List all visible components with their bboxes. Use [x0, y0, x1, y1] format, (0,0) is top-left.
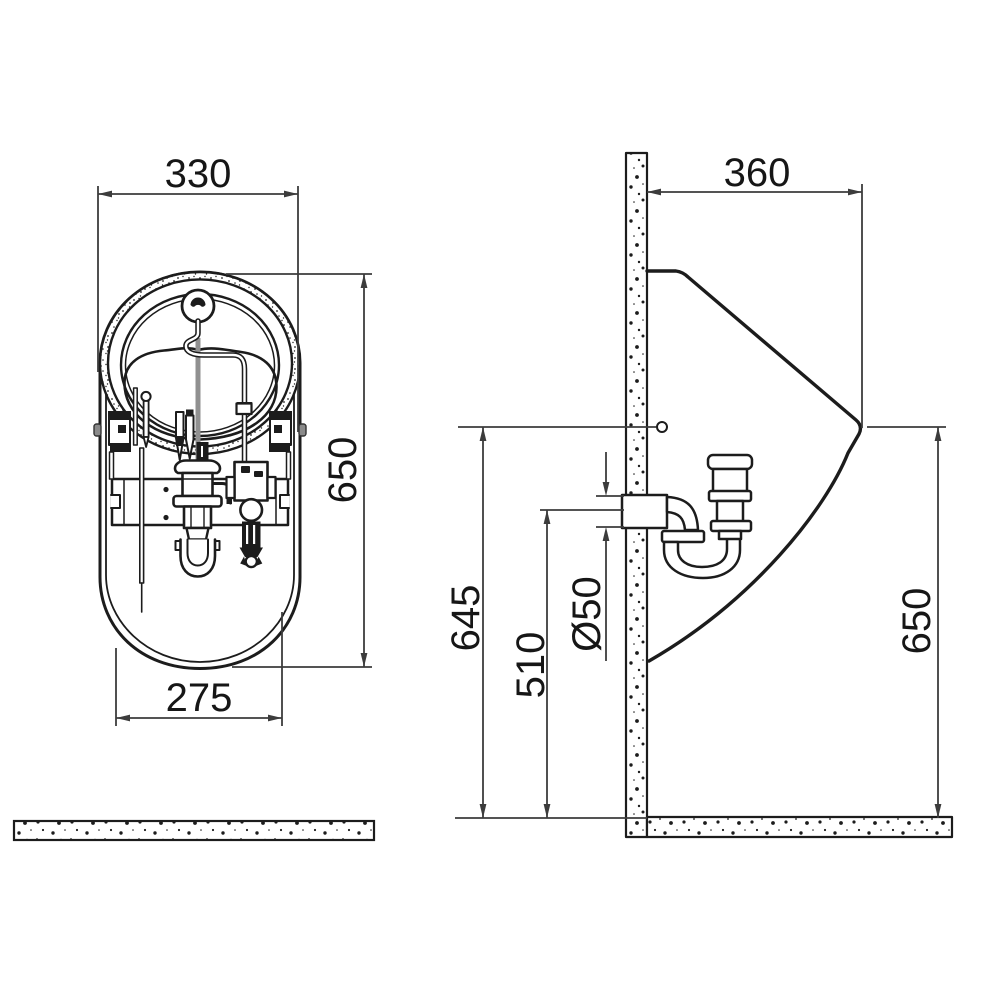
angle-valve-mark1 [241, 466, 250, 473]
arrow [603, 482, 610, 496]
angle-valve-cartridge [242, 522, 261, 548]
arrow [647, 189, 661, 196]
tailpipe-neck [713, 469, 747, 493]
arrow [603, 527, 610, 541]
outlet-elbow [667, 497, 698, 530]
technical-drawing-page: 330 650 275 360 645 510 Ø50 650 [0, 0, 1000, 1000]
arrow [935, 427, 942, 441]
drain-neck [187, 528, 209, 540]
probe-line [134, 388, 138, 445]
dim-label-front-height: 650 [321, 437, 365, 504]
plate-screw-bottom [163, 515, 168, 520]
tailpipe-cap [708, 455, 752, 469]
arrow [361, 653, 368, 667]
valve-outlet-ring [246, 556, 257, 567]
bracket-left-bottom [110, 443, 131, 452]
side-view [622, 153, 952, 837]
sensor-bulb [141, 392, 150, 401]
drain-cup-outer [181, 540, 216, 577]
flush-valve-collar [175, 461, 220, 474]
tailpipe-outlet [719, 531, 741, 539]
wall-outlet-box [622, 495, 667, 528]
dim-label-side-outlet-diameter: Ø50 [565, 576, 609, 652]
floor-slab-front-view [14, 821, 374, 840]
sensor-stem [144, 401, 149, 437]
inlet-block-slit [201, 446, 203, 457]
tailpipe-flange2 [711, 521, 751, 531]
flush-valve-flange [174, 496, 222, 507]
bracket-right-hole [274, 425, 282, 433]
inlet-plug-left-band [176, 436, 184, 446]
angle-valve-wing-left [227, 477, 235, 498]
bracket-right-bottom [269, 443, 290, 452]
tailpipe-body [717, 501, 743, 522]
arrow [544, 510, 551, 524]
tailpipe-flange1 [709, 491, 751, 501]
arrow [361, 274, 368, 288]
angle-valve-mark2 [254, 471, 263, 477]
arrow [268, 715, 282, 722]
dim-label-front-bottom-width: 275 [166, 676, 233, 720]
plate-screw-top [163, 487, 168, 492]
bracket-right-top [269, 411, 292, 419]
angle-valve-wing-right [268, 477, 276, 498]
arrow [848, 189, 862, 196]
plate-notch-right-mask [280, 495, 289, 508]
cartridge-slit2 [253, 525, 255, 544]
arrow [544, 804, 551, 818]
dim-label-side-fixing-height: 645 [444, 585, 488, 652]
urinal-profile [647, 271, 860, 661]
bracket-left-strap1 [110, 452, 114, 479]
bracket-right-pin [299, 424, 306, 436]
dim-label-side-rim-height: 650 [895, 588, 939, 655]
bracket-left-top [108, 411, 131, 419]
flush-spreader-head [182, 290, 214, 322]
cartridge-slit1 [246, 525, 248, 544]
angle-valve-fitting [237, 404, 252, 415]
flush-valve-body [183, 473, 213, 496]
plate-notch-left-mask [111, 495, 120, 508]
trap-nut [662, 531, 704, 542]
floor-slab-side-view [647, 817, 952, 837]
bracket-left-hole [118, 425, 126, 433]
arrow [98, 191, 112, 198]
angle-valve-ball [240, 499, 262, 521]
arrow [480, 427, 487, 441]
dim-label-side-depth: 360 [724, 151, 791, 195]
angle-valve-body [235, 462, 268, 501]
dim-label-side-outlet-height: 510 [509, 632, 553, 699]
arrow [480, 804, 487, 818]
arrow [284, 191, 298, 198]
bracket-right-strap1 [287, 452, 291, 479]
fixing-hole [657, 422, 667, 432]
dim-label-front-width: 330 [165, 152, 232, 196]
sensor-cable [140, 448, 144, 583]
dimension-drawing-svg: 330 650 275 360 645 510 Ø50 650 [0, 0, 1000, 1000]
arrow [116, 715, 130, 722]
front-view [94, 272, 306, 669]
bracket-left-pin [94, 424, 101, 436]
flush-valve-lower-body [184, 507, 211, 529]
